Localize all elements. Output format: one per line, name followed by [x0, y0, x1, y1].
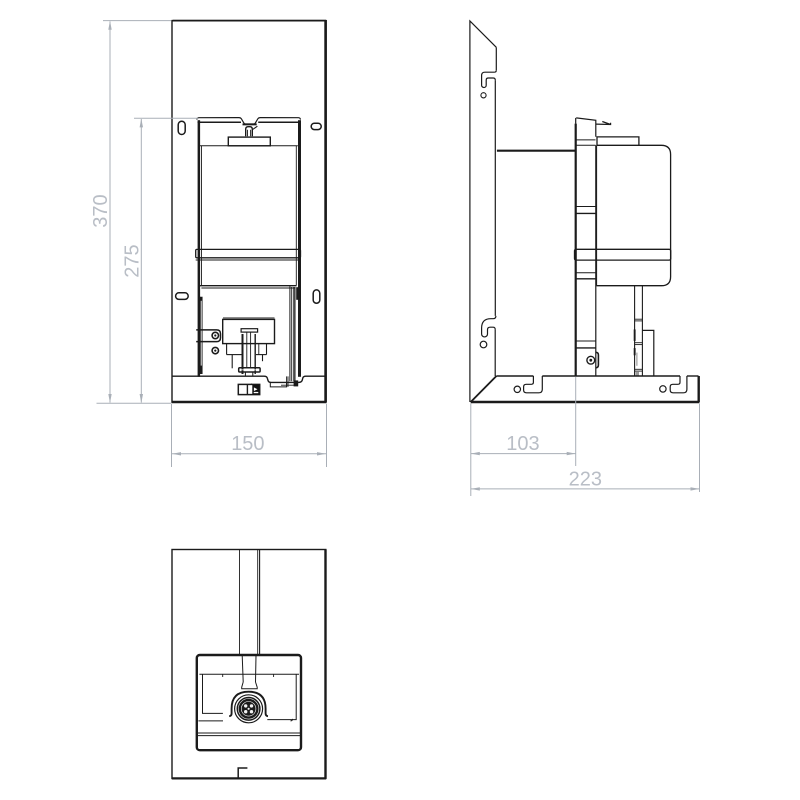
svg-text:223: 223 [569, 468, 602, 490]
svg-text:275: 275 [122, 244, 144, 277]
svg-text:150: 150 [231, 433, 264, 455]
svg-text:370: 370 [90, 194, 112, 227]
svg-text:103: 103 [506, 433, 539, 455]
